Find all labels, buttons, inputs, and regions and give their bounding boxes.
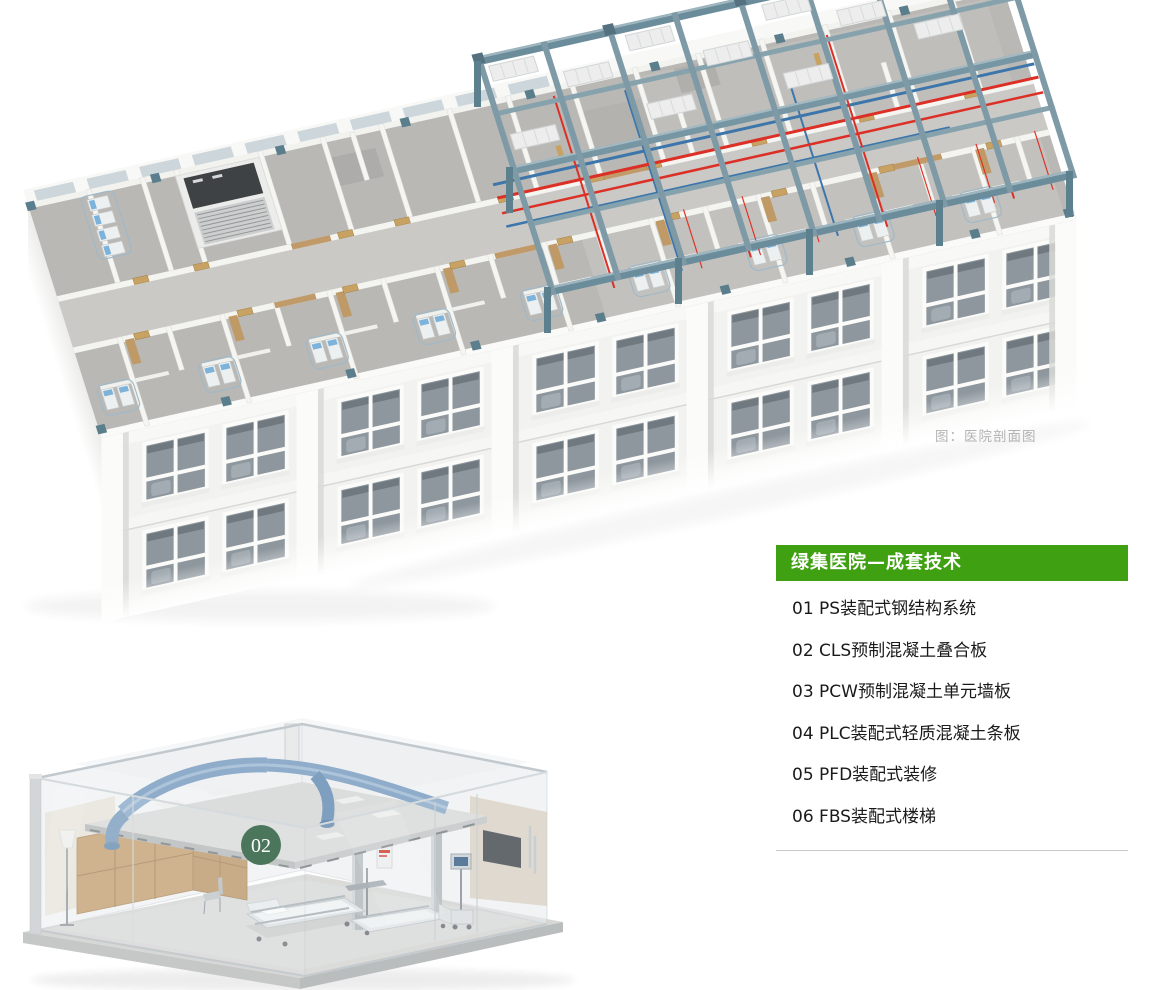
tech-list: 01 PS装配式钢结构系统 02 CLS预制混凝土叠合板 03 PCW预制混凝土… bbox=[776, 589, 1128, 838]
page: 图：医院剖面图 绿集医院—成套技术 01 PS装配式钢结构系统 02 CLS预制… bbox=[0, 0, 1152, 990]
tech-item: 01 PS装配式钢结构系统 bbox=[776, 589, 1128, 631]
tech-item: 02 CLS预制混凝土叠合板 bbox=[776, 631, 1128, 673]
tech-item: 04 PLC装配式轻质混凝土条板 bbox=[776, 714, 1128, 756]
hospital-section-figure: 图：医院剖面图 bbox=[0, 0, 1110, 640]
tech-item: 03 PCW预制混凝土单元墙板 bbox=[776, 672, 1128, 714]
hospital-section-illustration bbox=[0, 0, 1110, 640]
figure-caption: 图：医院剖面图 bbox=[935, 425, 1037, 445]
tech-panel-title: 绿集医院—成套技术 bbox=[776, 545, 1128, 581]
divider bbox=[776, 850, 1128, 851]
ward-room-illustration: 02 bbox=[15, 718, 615, 990]
tech-item: 06 FBS装配式楼梯 bbox=[776, 797, 1128, 839]
tech-panel: 绿集医院—成套技术 01 PS装配式钢结构系统 02 CLS预制混凝土叠合板 0… bbox=[776, 545, 1128, 851]
ward-room-figure: 02 bbox=[15, 718, 615, 990]
tech-item: 05 PFD装配式装修 bbox=[776, 755, 1128, 797]
